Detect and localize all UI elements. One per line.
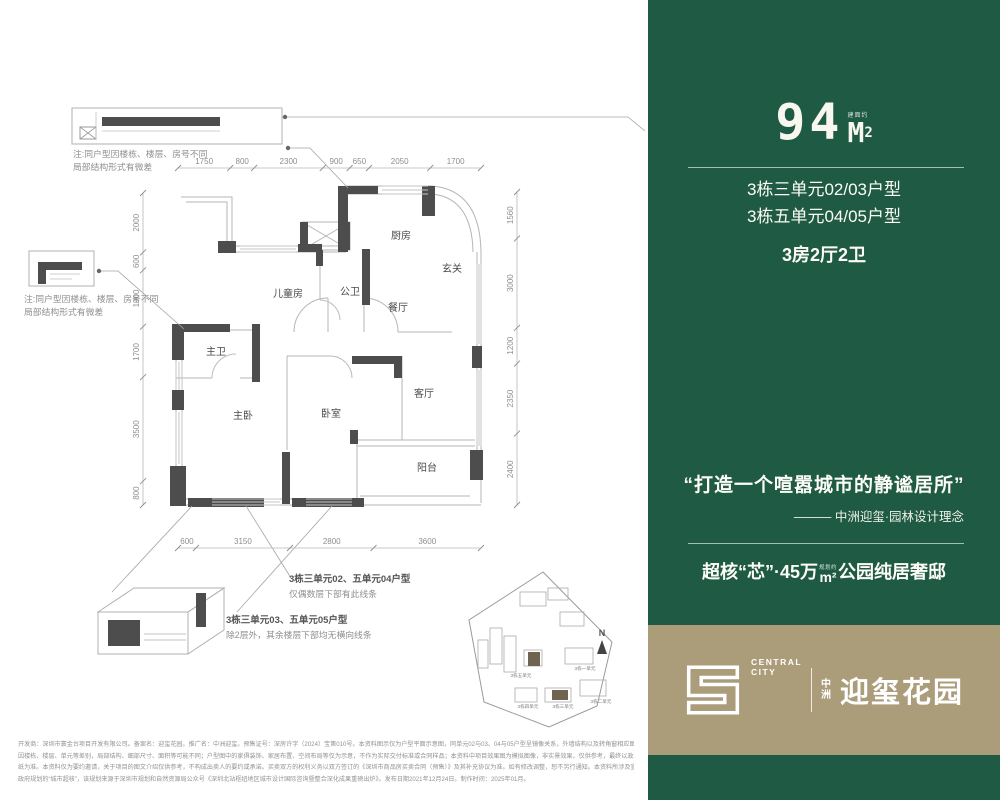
svg-text:儿童房: 儿童房 — [273, 287, 303, 300]
note-2-line2: 局部结构形式有微差 — [24, 306, 158, 319]
svg-text:主卧: 主卧 — [233, 409, 253, 422]
svg-text:2050: 2050 — [391, 157, 409, 166]
svg-text:600: 600 — [132, 254, 141, 268]
bottom-green-strip — [648, 755, 1000, 800]
note-1-line2: 局部结构形式有微差 — [73, 161, 207, 174]
quote: “打造一个喧嚣城市的静谧居所” — [648, 470, 1000, 497]
quote-attribution: ——— 中洲迎玺·园林设计理念 — [648, 506, 964, 525]
note-1: 注:同户型因楼栋、楼层、房号不同 局部结构形式有微差 — [73, 148, 207, 174]
divider-top — [688, 167, 964, 168]
dimension-chains-layer: 1750800230090065020501700200060019001700… — [132, 157, 520, 551]
svg-text:3500: 3500 — [132, 420, 141, 438]
disclaimer-line: 纸为准。本资料仅为要约邀请，关于项目的图文介绍仅供参考，不构成出卖人的要约或承诺… — [18, 762, 634, 774]
callout-1: 3栋三单元02、五单元04户型 仅偶数层下部有此线条 — [289, 571, 410, 600]
disclaimer: 开发商：深圳市寰金台项目开发有限公司。备案名：迎玺花园。推广名：中洲迎玺。预售证… — [18, 739, 634, 785]
area-number: 94 — [775, 98, 843, 146]
svg-text:2350: 2350 — [506, 389, 515, 407]
site-labels-layer: 3栋一单元3栋二单元3栋三单元3栋四单元3栋五单元 — [511, 665, 612, 710]
disclaimer-line: 政府规划的“城市超核”，该规划来源于深圳市规划和自然资源局公众号《深圳北站枢纽地… — [18, 774, 634, 786]
svg-text:1700: 1700 — [447, 157, 465, 166]
poster-canvas: N 厨房玄关餐厅公卫儿童房主卫主卧卧室客厅阳台 1750800230090065… — [0, 0, 1000, 800]
svg-text:3栋二单元: 3栋二单元 — [591, 698, 612, 705]
plan-doors-layer — [212, 300, 352, 378]
area-badge: 94 建面约 M2 — [648, 98, 1000, 146]
svg-text:主卫: 主卫 — [206, 346, 226, 358]
callout-1-sub: 仅偶数层下部有此线条 — [289, 587, 410, 600]
room-labels-layer: 厨房玄关餐厅公卫儿童房主卫主卧卧室客厅阳台 — [206, 229, 462, 474]
note-2-line1: 注:同户型因楼栋、楼层、房号不同 — [24, 293, 158, 306]
unit-lines: 3栋三单元02/03户型 3栋五单元04/05户型 — [648, 176, 1000, 230]
svg-text:玄关: 玄关 — [442, 262, 462, 275]
note-2: 注:同户型因楼栋、楼层、房号不同 局部结构形式有微差 — [24, 293, 158, 319]
svg-text:1200: 1200 — [506, 336, 515, 354]
svg-text:餐厅: 餐厅 — [388, 301, 408, 314]
floorplan-drawing: N 厨房玄关餐厅公卫儿童房主卫主卧卧室客厅阳台 1750800230090065… — [0, 0, 648, 800]
brand-logo: CENTRAL CITY 中 洲 迎玺花园 — [648, 645, 1000, 735]
disclaimer-line: 开发商：深圳市寰金台项目开发有限公司。备案名：迎玺花园。推广名：中洲迎玺。预售证… — [18, 739, 634, 751]
plan-windows-layer — [176, 186, 481, 505]
tagline-unit: m² — [819, 571, 836, 584]
svg-text:1700: 1700 — [132, 343, 141, 361]
site-highlight-building-5 — [528, 652, 540, 666]
callout-2: 3栋三单元03、五单元05户型 除2层外，其余楼层下部均无横向线条 — [226, 612, 372, 641]
brand-line-2: CITY — [751, 667, 802, 677]
note-box-2-drawing — [29, 251, 94, 286]
site-buildings — [478, 588, 606, 702]
callout-2-title: 3栋三单元03、五单元05户型 — [226, 612, 372, 626]
svg-text:2800: 2800 — [323, 537, 341, 546]
area-sup: 2 — [864, 125, 872, 141]
area-tiny-label: 建面约 — [847, 113, 868, 119]
svg-text:3600: 3600 — [418, 537, 436, 546]
svg-text:1560: 1560 — [506, 206, 515, 224]
callout-1-title: 3栋三单元02、五单元04户型 — [289, 571, 410, 585]
tagline-prefix: 超核“芯”·45万 — [702, 562, 818, 582]
svg-text:3000: 3000 — [506, 274, 515, 292]
svg-text:2000: 2000 — [132, 213, 141, 231]
area-unit: M2 — [847, 120, 872, 146]
svg-text:公卫: 公卫 — [340, 287, 360, 298]
project-name: 迎玺花园 — [840, 669, 964, 711]
callout-detail-drawing — [98, 588, 224, 654]
divider-bottom — [688, 543, 964, 544]
svg-text:3栋五单元: 3栋五单元 — [511, 672, 532, 679]
unit-line-2: 3栋五单元04/05户型 — [648, 203, 1000, 230]
layout-line: 3房2厅2卫 — [648, 241, 1000, 267]
svg-text:3150: 3150 — [234, 537, 252, 546]
callout-2-sub: 除2层外，其余楼层下部均无横向线条 — [226, 628, 372, 641]
svg-text:N: N — [599, 628, 606, 638]
site-highlight-building-3 — [552, 690, 568, 700]
unit-line-1: 3栋三单元02/03户型 — [648, 176, 1000, 203]
disclaimer-line: 因楼栋、楼层、单元等差别，局部结构、细部尺寸、面积等可能不同；户型图中的家俱装饰… — [18, 751, 634, 763]
note-box-1-drawing — [72, 108, 282, 144]
svg-text:3栋四单元: 3栋四单元 — [518, 703, 539, 710]
svg-text:800: 800 — [132, 486, 141, 500]
note-1-line1: 注:同户型因楼栋、楼层、房号不同 — [73, 148, 207, 161]
central-city-s-icon — [684, 664, 742, 716]
compass-north: N — [597, 628, 607, 654]
svg-text:650: 650 — [353, 157, 367, 166]
svg-text:客厅: 客厅 — [414, 387, 434, 400]
tagline-unit-wrap: 规划约m² — [819, 566, 837, 584]
area-unit-wrap: 建面约 M2 — [847, 113, 872, 146]
brand-cn-top: 中 — [821, 679, 831, 690]
svg-text:800: 800 — [236, 157, 250, 166]
svg-text:2300: 2300 — [280, 157, 298, 166]
svg-text:900: 900 — [330, 157, 344, 166]
green-info-panel: 94 建面约 M2 3栋三单元02/03户型 3栋五单元04/05户型 3房2厅… — [648, 0, 1000, 625]
plan-outline-layer — [176, 186, 481, 505]
tagline-suffix: 公园纯居奢邸 — [838, 562, 946, 582]
brand-cn-small: 中 洲 — [821, 679, 831, 701]
brand-wordmark: CENTRAL CITY — [751, 657, 802, 677]
svg-text:阳台: 阳台 — [417, 461, 437, 474]
logo-divider — [811, 668, 812, 712]
svg-text:3栋三单元: 3栋三单元 — [553, 703, 574, 710]
brand-line-1: CENTRAL — [751, 657, 802, 667]
svg-text:600: 600 — [180, 537, 194, 546]
svg-text:2400: 2400 — [506, 460, 515, 478]
svg-text:厨房: 厨房 — [391, 229, 411, 242]
tagline-tiny-label: 规划约 — [819, 566, 837, 571]
svg-text:卧室: 卧室 — [321, 407, 341, 420]
svg-text:3栋一单元: 3栋一单元 — [575, 665, 596, 672]
brand-cn-bottom: 洲 — [821, 690, 831, 701]
tagline: 超核“芯”·45万规划约m²公园纯居奢邸 — [648, 558, 1000, 584]
